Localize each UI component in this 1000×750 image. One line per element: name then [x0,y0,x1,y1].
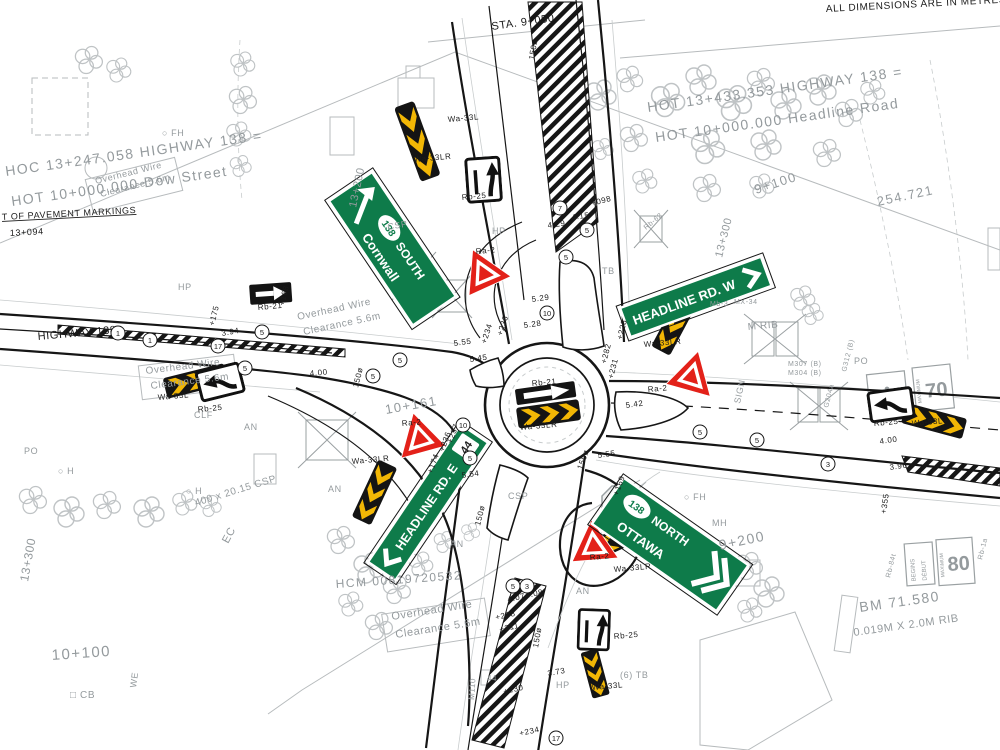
cad-label: HP [178,282,192,292]
curve-number-badge: 5 [693,425,707,439]
cad-label: M304 (B) [788,370,822,377]
cad-label: 5.54 [461,469,480,480]
cad-label: WE [128,671,140,688]
curve-number-badge: 5 [506,579,520,593]
cad-label: MX-34 [734,299,758,306]
svg-text:7: 7 [558,204,562,213]
cad-label: 9+100 [752,169,798,197]
cad-label: ALL DIMENSIONS ARE IN METRES [826,0,1000,15]
svg-text:17: 17 [552,734,560,743]
curve-number-badge: 1 [111,326,125,340]
curve-number-badge: 5 [393,353,407,367]
cad-label: 5.28 [523,319,542,330]
cad-label: 3.73 [547,666,566,678]
cad-label: PO [854,356,868,366]
cad-label: Ra-2 [589,551,609,562]
cad-label: Wa-33L [157,390,189,402]
curve-number-badge: 17 [549,731,563,745]
cad-label: (6) TB [620,670,648,680]
cad-label: Rb-25 [197,403,222,414]
cad-label: 13+094 [10,226,44,238]
cad-label: □ CB [70,690,95,701]
cad-label: Ra-2 [401,417,421,428]
curve-number-badge: 5 [238,361,252,375]
cad-label: AN [450,539,464,549]
cad-label: M307 (B) [788,361,822,368]
cad-label: 10+100 [51,643,112,664]
plan-drawing: STOP ✿ MAXIMUM 70 BEGINS DÉBUT MAXIMUM 8… [0,0,1000,750]
cad-label: 3.94 [221,326,240,338]
cad-label: 5.55 [597,449,616,460]
svg-text:10: 10 [543,309,551,318]
cad-label: 13+300 [713,216,734,258]
curve-number-badge: 17 [211,339,225,353]
cad-label: Wa-33LR [643,337,681,349]
curve-number-badge: 3 [821,457,835,471]
cad-label: Wa-33LR [613,562,651,574]
chevron-marker-north [394,101,441,182]
cad-label: 9+200 [717,528,766,553]
svg-text:5: 5 [511,582,515,591]
max80-debut: DÉBUT [920,560,928,581]
cad-label: Rb-25 [613,630,638,641]
cad-label: HIGHWAY 138 [37,324,117,343]
cad-label: 150ø [575,448,591,470]
cad-label: Mb-3 [710,301,728,308]
cad-label: 4.00 [879,435,898,446]
cad-label: Wa-33LR [413,152,451,164]
cad-label: 4.00 [309,367,328,378]
svg-text:5: 5 [468,454,472,463]
cad-label: Rb-1a [977,537,989,560]
cad-label: ○ H [186,486,202,496]
cad-label: 44 [487,674,497,683]
max80-value: 80 [947,552,971,575]
svg-text:3: 3 [826,460,830,469]
curve-number-badge: 1 [143,333,157,347]
curve-number-badge: 3 [520,579,534,593]
curve-number-badge: 5 [580,223,594,237]
chevron-marker-headline-e [352,459,398,525]
cad-label: 5.55 [453,337,472,348]
cad-label: 5.29 [531,293,550,304]
speed-sign-80: BEGINS DÉBUT MAXIMUM 80 [904,537,975,588]
svg-text:5: 5 [585,226,589,235]
cad-label: 0.019M X 2.0M RIB [853,612,960,639]
cad-label: AN [244,422,258,432]
cad-label: Wa-33L [591,680,623,692]
cad-label: ○ FH [684,492,706,502]
svg-text:5: 5 [260,328,264,337]
cad-label: AN [328,484,342,494]
svg-text:5: 5 [371,372,375,381]
cad-label: 13+300 [17,537,38,583]
svg-text:10: 10 [459,421,467,430]
cad-label: HP [556,680,570,690]
cad-label: Wa-33LR [519,420,557,432]
cad-label: MH [712,518,727,528]
cad-label: M110 [467,678,478,700]
curve-number-badge: 10 [456,418,470,432]
cad-label: Rb-84t [885,553,898,579]
cad-label: ○ H [58,466,74,476]
curve-number-badge: 5 [255,325,269,339]
cad-label: 10+161 [384,393,439,417]
keep-right-sign-south [578,609,610,650]
svg-text:1: 1 [148,336,152,345]
cad-label: AN [576,586,590,596]
cad-label: SIGN [732,378,747,404]
curve-number-badge: 7 [553,201,567,215]
cad-label: +355 [879,493,891,514]
cad-label: CSP [508,491,528,501]
engineering-plan-canvas: { "drawing_title": "Roundabout intersect… [0,0,1000,750]
svg-text:5: 5 [698,428,702,437]
svg-text:5: 5 [564,253,568,262]
curve-number-badge: 5 [750,433,764,447]
curve-number-badge: 10 [540,306,554,320]
cad-label: 254.721 [876,182,935,209]
max70-value: 70 [924,378,948,402]
cad-label: Wa-33L [447,112,479,124]
cad-label: +234 [479,322,494,344]
cad-label: TB [602,266,615,276]
cad-label: ○ FH [162,128,184,138]
curve-number-badge: 5 [559,250,573,264]
cad-label: Rb-25 [873,417,898,428]
cad-label: PO [24,446,38,456]
cad-label: BM 71.580 [858,588,941,615]
cad-label: +175 [207,304,221,326]
svg-text:5: 5 [755,436,759,445]
cad-label: 3.96 [889,461,908,472]
cad-label: Ra-2 [647,383,667,394]
cad-label: HP [492,226,506,236]
curve-number-badge: 5 [366,369,380,383]
svg-text:3: 3 [525,582,529,591]
cad-label: Rb-62 [643,212,664,232]
cad-label: 400 x 20.15 CSP [194,474,278,509]
cad-label: Ra-2 [475,245,495,256]
curve-number-badge: 5 [463,451,477,465]
svg-text:5: 5 [243,364,247,373]
svg-text:17: 17 [214,342,222,351]
cad-label: +234 [519,725,541,738]
cad-label: 150ø [473,504,487,526]
svg-text:1: 1 [116,329,120,338]
cad-label: EC [220,525,238,545]
svg-text:5: 5 [398,356,402,365]
